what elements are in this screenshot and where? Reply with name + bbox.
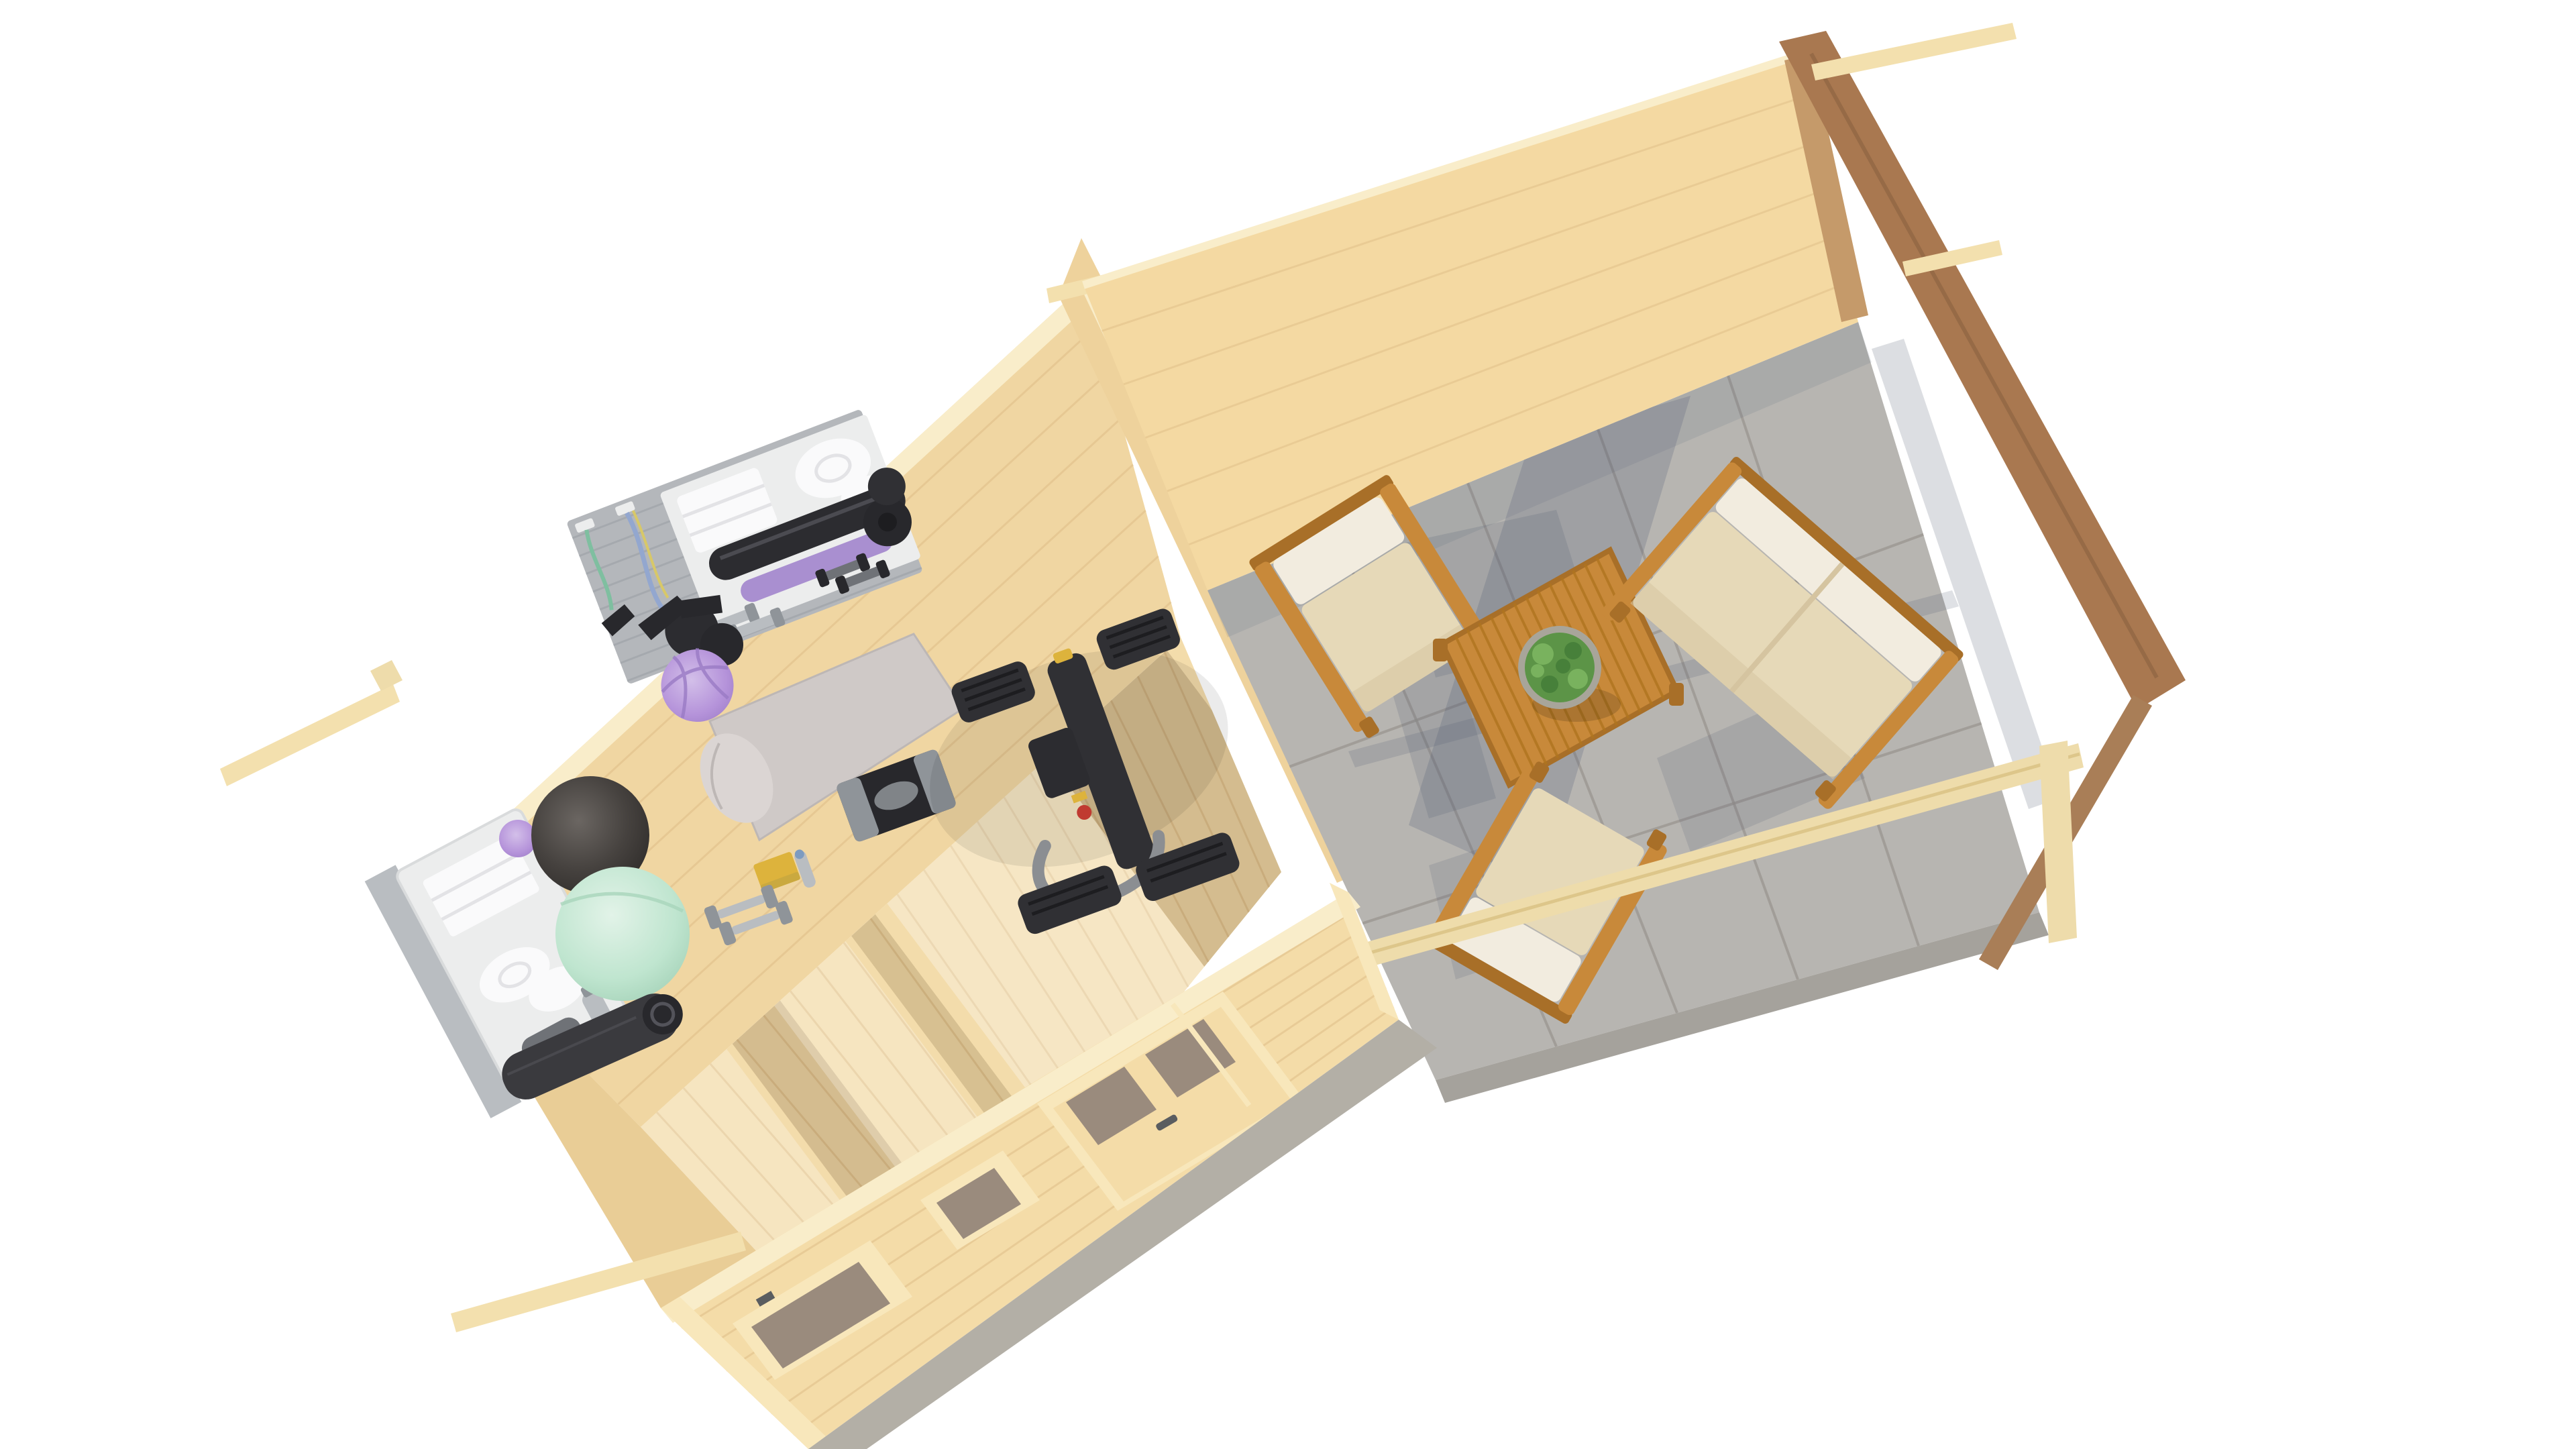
terrace	[1083, 23, 2186, 1103]
exercise-ball-mint	[555, 867, 690, 1001]
railing-corner-post	[2039, 741, 2077, 943]
pilates-ball-small	[499, 820, 537, 857]
roof-purlin-beam-west	[220, 660, 402, 786]
potted-plant	[1518, 626, 1601, 709]
scene-render	[0, 0, 2576, 1449]
ridge-beam	[1811, 23, 2017, 80]
